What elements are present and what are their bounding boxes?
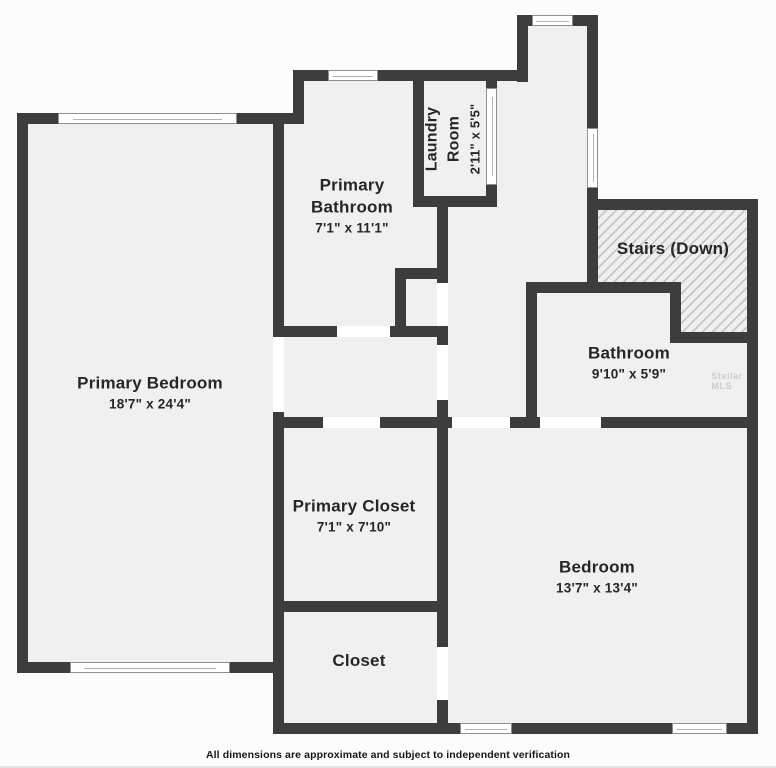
window-marker — [587, 128, 598, 188]
watermark: Stellar MLS — [712, 371, 755, 391]
room-name: Stairs (Down) — [617, 238, 729, 260]
room-label: Primary Closet7'1" x 7'10" — [293, 496, 416, 537]
room-name: Primary Bedroom — [77, 373, 223, 395]
door-opening — [437, 283, 448, 326]
wall — [747, 199, 758, 734]
window-marker — [328, 70, 378, 81]
room-name: Primary Bathroom — [292, 175, 412, 219]
wall — [413, 196, 497, 207]
room-dims: 7'1" x 11'1" — [292, 219, 412, 238]
wall — [273, 723, 448, 734]
door-opening — [337, 326, 390, 337]
room-label: Bedroom13'7" x 13'4" — [556, 557, 638, 598]
door-opening — [437, 345, 448, 400]
door-opening — [273, 337, 284, 412]
room-label: Stairs (Down) — [617, 238, 729, 260]
room-name: Primary Closet — [293, 496, 416, 518]
wall — [273, 113, 284, 337]
room-name: Closet — [332, 650, 385, 672]
wall — [526, 282, 537, 428]
room-dims: 7'1" x 7'10" — [293, 518, 416, 537]
room-dims: 9'10" x 5'9" — [588, 365, 670, 384]
wall — [526, 282, 681, 293]
room-label: Bathroom9'10" x 5'9" — [588, 343, 670, 384]
wall — [670, 332, 758, 343]
window-marker — [486, 88, 497, 185]
window-marker — [70, 662, 230, 673]
room-name: Bedroom — [556, 557, 638, 579]
room-dims: 13'7" x 13'4" — [556, 579, 638, 598]
wall — [17, 113, 28, 673]
wall — [587, 199, 758, 210]
window-marker — [58, 113, 237, 124]
window-marker — [672, 723, 727, 734]
floor-plan: Primary Bedroom18'7" x 24'4"Primary Bath… — [0, 0, 776, 768]
door-opening — [540, 417, 601, 428]
wall — [273, 601, 448, 612]
room-label: Primary Bedroom18'7" x 24'4" — [77, 373, 223, 414]
door-opening — [437, 647, 448, 700]
room-dims: 18'7" x 24'4" — [77, 395, 223, 414]
door-opening — [452, 417, 510, 428]
room-name: Bathroom — [588, 343, 670, 365]
room-name: Laundry Room — [422, 83, 466, 195]
window-marker — [532, 15, 573, 26]
room-dims: 2'11" x 5'5" — [466, 83, 485, 195]
room-label: Primary Bathroom7'1" x 11'1" — [292, 175, 412, 238]
window-marker — [460, 723, 512, 734]
disclaimer-text: All dimensions are approximate and subje… — [0, 749, 776, 761]
wall — [273, 412, 284, 734]
room-fill — [437, 196, 537, 428]
room-label: Laundry Room2'11" x 5'5" — [422, 83, 485, 195]
door-opening — [323, 417, 380, 428]
room-label: Closet — [332, 650, 385, 672]
